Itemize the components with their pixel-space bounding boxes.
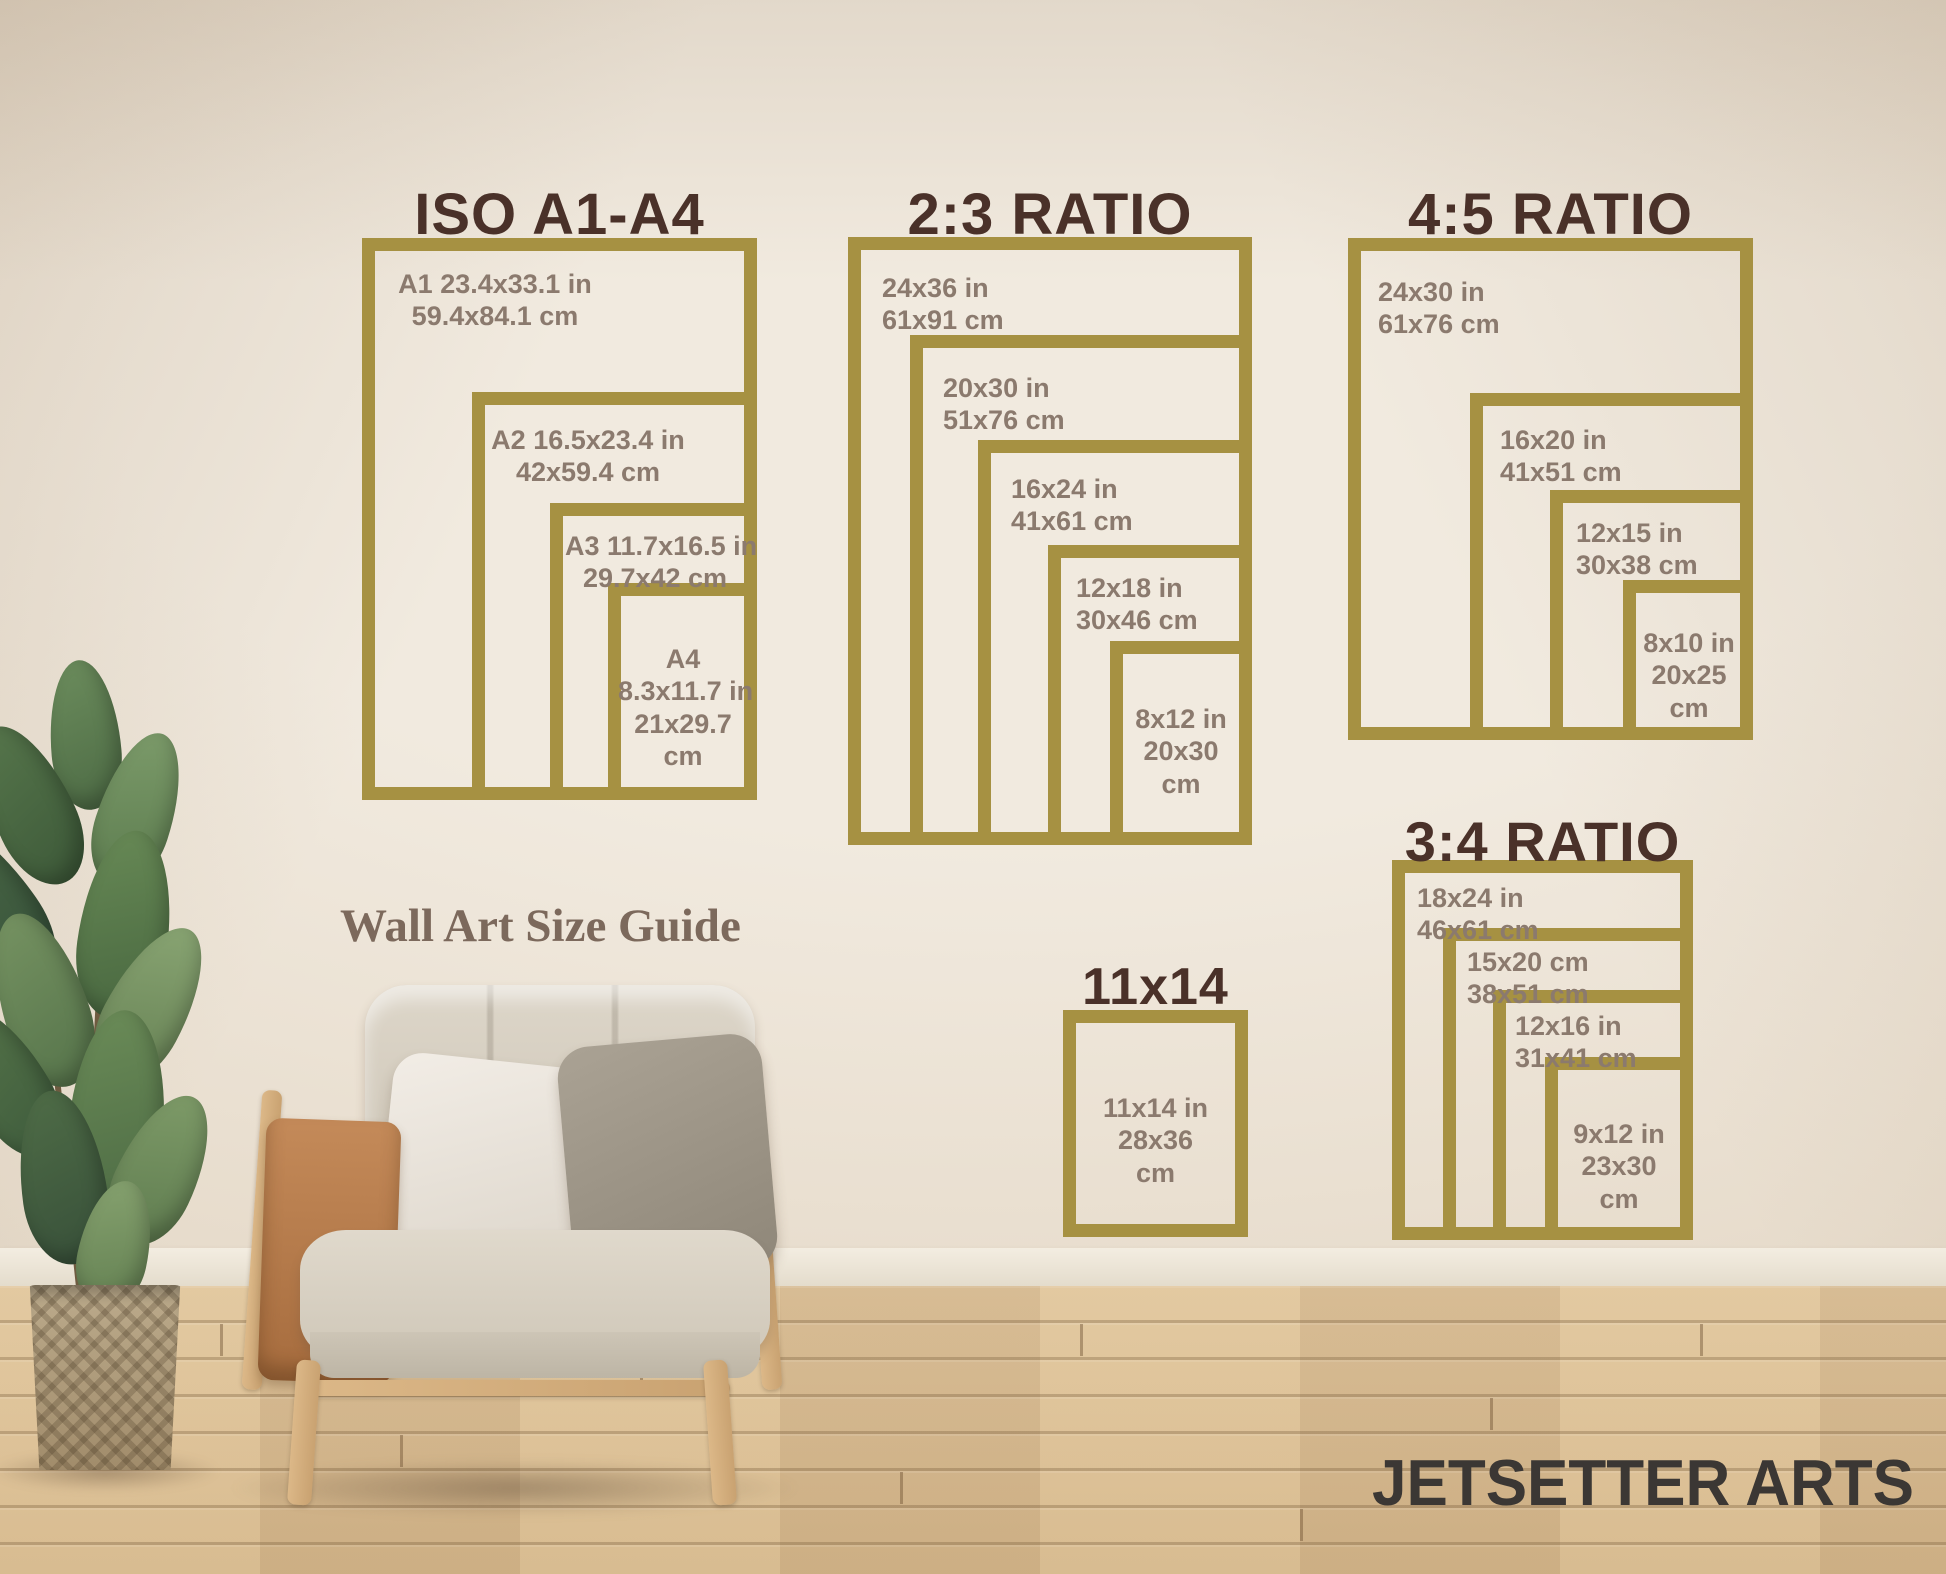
label-a4-line: 8.3x11.7 in — [618, 675, 748, 707]
label-a3-line: A3 11.7x16.5 in — [565, 530, 745, 562]
label-12x15-line: 30x38 cm — [1576, 549, 1698, 581]
section-2-3-ratio: 2:3 RATIO 24x36 in 61x91 cm 20x30 in 51x… — [848, 237, 1252, 845]
label-16x24-line: 41x61 cm — [1011, 505, 1133, 537]
label-11x14-line: cm — [1093, 1157, 1218, 1189]
label-20x30: 20x30 in 51x76 cm — [943, 372, 1065, 437]
label-a4-line: 21x29.7 — [618, 708, 748, 740]
section-3-4-ratio: 3:4 RATIO 18x24 in 46x61 cm 15x20 cm 38x… — [1392, 860, 1693, 1240]
section-title-3-4: 3:4 RATIO — [1375, 809, 1710, 874]
room-scene: ISO A1-A4 A1 23.4x33.1 in 59.4x84.1 cm A… — [0, 0, 1946, 1574]
label-24x36-line: 61x91 cm — [882, 304, 1004, 336]
label-a3-line: 29.7x42 cm — [565, 562, 745, 594]
label-a2-line: 42x59.4 cm — [488, 456, 688, 488]
label-12x16: 12x16 in 31x41 cm — [1515, 1010, 1637, 1075]
label-12x15: 12x15 in 30x38 cm — [1576, 517, 1698, 582]
label-16x24: 16x24 in 41x61 cm — [1011, 473, 1133, 538]
label-9x12-line: 23x30 — [1556, 1150, 1682, 1182]
label-a4: A4 8.3x11.7 in 21x29.7 cm — [618, 643, 748, 773]
label-24x30-line: 61x76 cm — [1378, 308, 1500, 340]
label-16x20-line: 41x51 cm — [1500, 456, 1622, 488]
label-16x24-line: 16x24 in — [1011, 473, 1133, 505]
label-18x24-line: 46x61 cm — [1417, 914, 1539, 946]
section-title-iso: ISO A1-A4 — [345, 181, 774, 248]
label-8x12-line: 20x30 — [1116, 735, 1246, 767]
label-a4-line: A4 — [618, 643, 748, 675]
label-15x20-line: 15x20 cm — [1467, 946, 1589, 978]
section-title-2-3: 2:3 RATIO — [831, 181, 1269, 248]
floor-plank-joint — [1490, 1398, 1493, 1430]
label-8x12-line: 8x12 in — [1116, 703, 1246, 735]
label-24x36: 24x36 in 61x91 cm — [882, 272, 1004, 337]
label-a1-line: 59.4x84.1 cm — [380, 300, 610, 332]
floor-plank-joint — [1700, 1324, 1703, 1356]
label-24x30: 24x30 in 61x76 cm — [1378, 276, 1500, 341]
section-11x14: 11x14 11x14 in 28x36 cm — [1063, 1010, 1248, 1237]
label-9x12-line: cm — [1556, 1183, 1682, 1215]
label-12x18-line: 12x18 in — [1076, 572, 1198, 604]
label-18x24-line: 18x24 in — [1417, 882, 1539, 914]
label-a4-line: cm — [618, 740, 748, 772]
section-title-4-5: 4:5 RATIO — [1331, 181, 1770, 248]
label-a2: A2 16.5x23.4 in 42x59.4 cm — [488, 424, 688, 489]
label-a3: A3 11.7x16.5 in 29.7x42 cm — [565, 530, 745, 595]
label-a2-line: A2 16.5x23.4 in — [488, 424, 688, 456]
label-24x36-line: 24x36 in — [882, 272, 1004, 304]
label-15x20-line: 38x51 cm — [1467, 978, 1589, 1010]
label-12x18-line: 30x46 cm — [1076, 604, 1198, 636]
label-18x24: 18x24 in 46x61 cm — [1417, 882, 1539, 947]
label-15x20: 15x20 cm 38x51 cm — [1467, 946, 1589, 1011]
label-8x10-line: 8x10 in — [1626, 627, 1752, 659]
label-a1: A1 23.4x33.1 in 59.4x84.1 cm — [380, 268, 610, 333]
label-9x12-line: 9x12 in — [1556, 1118, 1682, 1150]
label-16x20-line: 16x20 in — [1500, 424, 1622, 456]
label-12x16-line: 31x41 cm — [1515, 1042, 1637, 1074]
label-24x30-line: 24x30 in — [1378, 276, 1500, 308]
label-11x14-line: 11x14 in — [1093, 1092, 1218, 1124]
label-8x12-line: cm — [1116, 768, 1246, 800]
armchair — [200, 960, 820, 1520]
guide-heading: Wall Art Size Guide — [340, 899, 741, 953]
label-a1-line: A1 23.4x33.1 in — [380, 268, 610, 300]
floor-plank-joint — [1080, 1324, 1083, 1356]
label-12x15-line: 12x15 in — [1576, 517, 1698, 549]
label-8x10-line: cm — [1626, 692, 1752, 724]
label-12x16-line: 12x16 in — [1515, 1010, 1637, 1042]
brand-logo-text: JETSETTER ARTS — [1372, 1447, 1914, 1521]
label-9x12: 9x12 in 23x30 cm — [1556, 1118, 1682, 1215]
label-8x10-line: 20x25 — [1626, 659, 1752, 691]
floor-plank-joint — [900, 1472, 903, 1504]
label-11x14-line: 28x36 — [1093, 1124, 1218, 1156]
label-20x30-line: 20x30 in — [943, 372, 1065, 404]
label-16x20: 16x20 in 41x51 cm — [1500, 424, 1622, 489]
section-iso-a1-a4: ISO A1-A4 A1 23.4x33.1 in 59.4x84.1 cm A… — [362, 238, 757, 800]
chair-seat-frame — [310, 1332, 760, 1378]
section-4-5-ratio: 4:5 RATIO 24x30 in 61x76 cm 16x20 in 41x… — [1348, 238, 1753, 740]
section-title-11x14: 11x14 — [1046, 957, 1265, 1017]
woven-basket-pot — [25, 1285, 185, 1470]
label-11x14: 11x14 in 28x36 cm — [1093, 1092, 1218, 1189]
floor-plank-joint — [1300, 1509, 1303, 1541]
label-8x10: 8x10 in 20x25 cm — [1626, 627, 1752, 724]
label-8x12: 8x12 in 20x30 cm — [1116, 703, 1246, 800]
label-20x30-line: 51x76 cm — [943, 404, 1065, 436]
label-12x18: 12x18 in 30x46 cm — [1076, 572, 1198, 637]
chair-cross-rail — [300, 1380, 730, 1396]
